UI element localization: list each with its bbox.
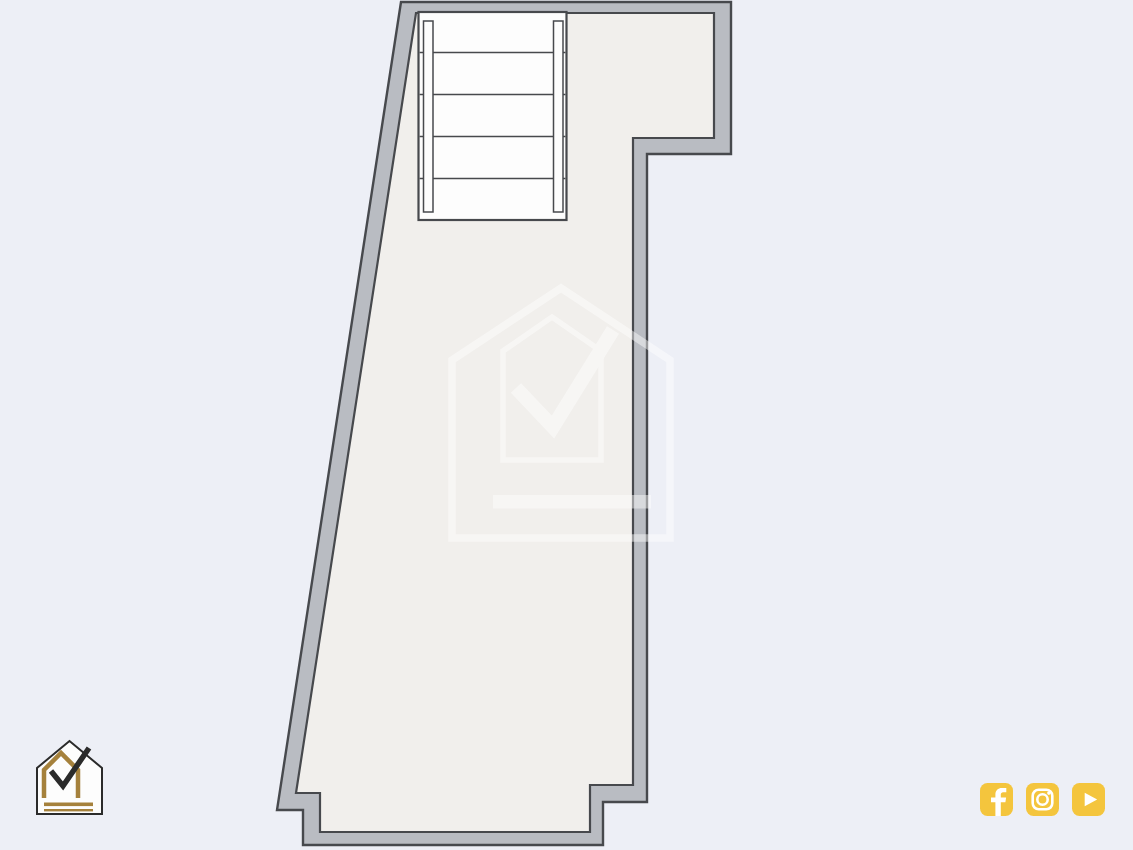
stair-stringer-right xyxy=(554,21,564,212)
instagram-icon-tile xyxy=(1026,783,1059,816)
social-links xyxy=(980,783,1105,816)
logo-underline-thick xyxy=(44,803,93,807)
watermark-underline-bar xyxy=(493,495,651,509)
floor-plan-page xyxy=(0,0,1133,850)
youtube-icon[interactable] xyxy=(1072,783,1105,816)
staircase xyxy=(419,12,567,220)
logo-underline-thin xyxy=(44,809,93,811)
staircase-outline xyxy=(419,12,567,220)
brand-logo xyxy=(35,738,105,816)
floor-plan-canvas xyxy=(0,0,1133,850)
instagram-icon[interactable] xyxy=(1026,783,1059,816)
facebook-icon[interactable] xyxy=(980,783,1013,816)
stair-stringer-left xyxy=(424,21,434,212)
instagram-flash-dot xyxy=(1047,791,1051,795)
